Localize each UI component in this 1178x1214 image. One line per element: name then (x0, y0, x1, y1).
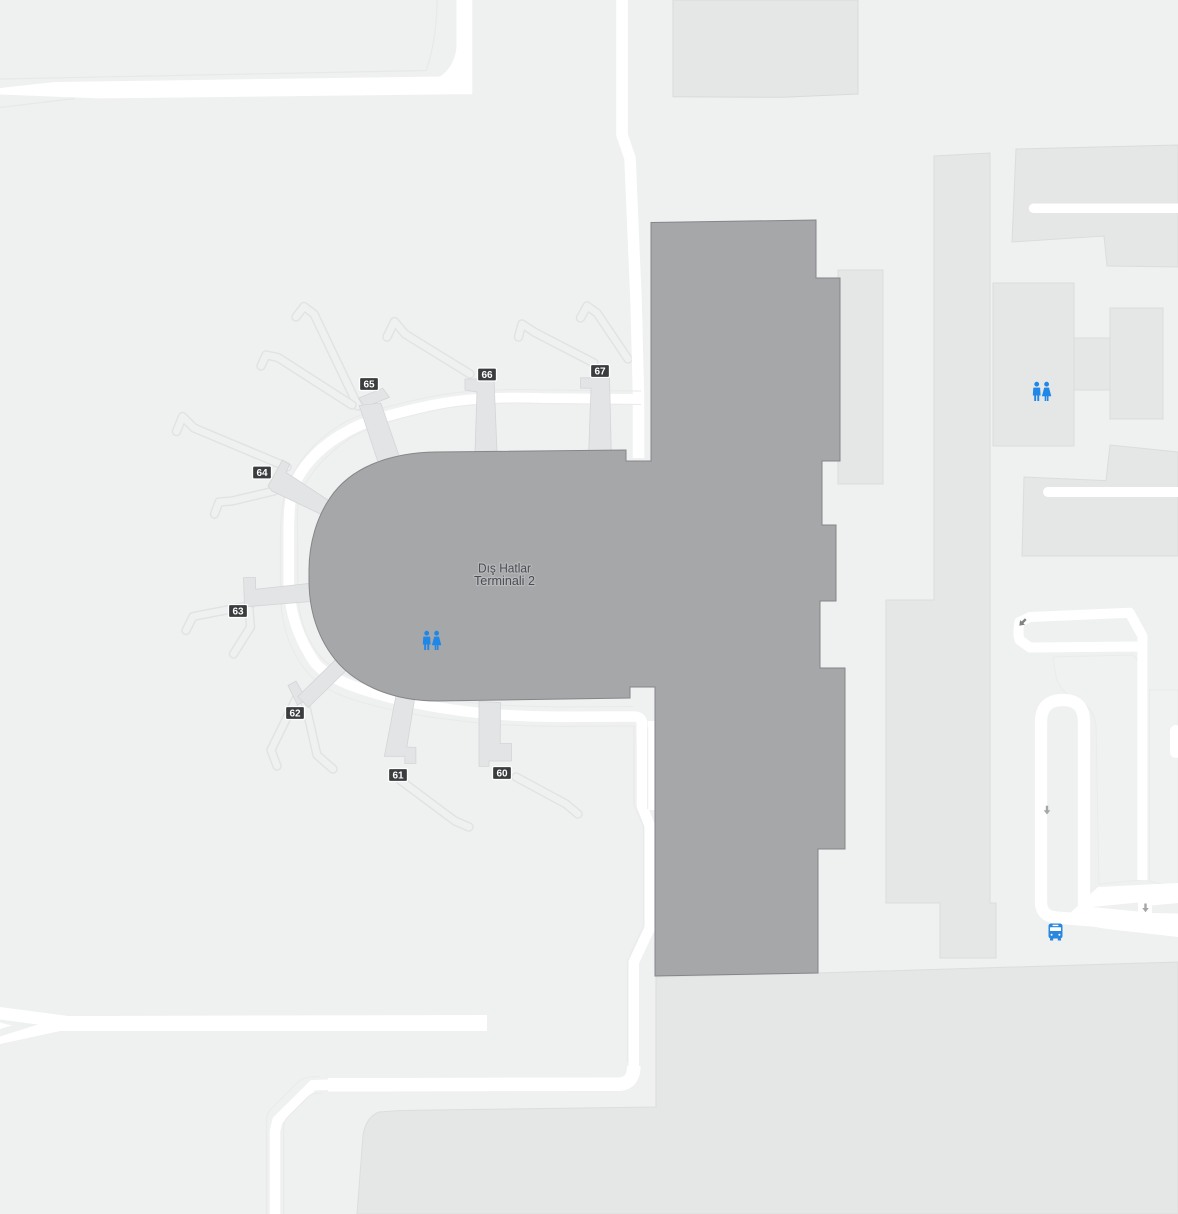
svg-text:67: 67 (594, 367, 606, 378)
svg-text:60: 60 (496, 769, 508, 780)
svg-text:64: 64 (256, 468, 268, 479)
svg-text:63: 63 (232, 607, 244, 618)
svg-text:65: 65 (363, 380, 375, 391)
svg-text:61: 61 (392, 771, 404, 782)
svg-text:62: 62 (289, 709, 301, 720)
svg-text:Terminali 2: Terminali 2 (474, 573, 535, 588)
svg-text:66: 66 (481, 370, 493, 381)
